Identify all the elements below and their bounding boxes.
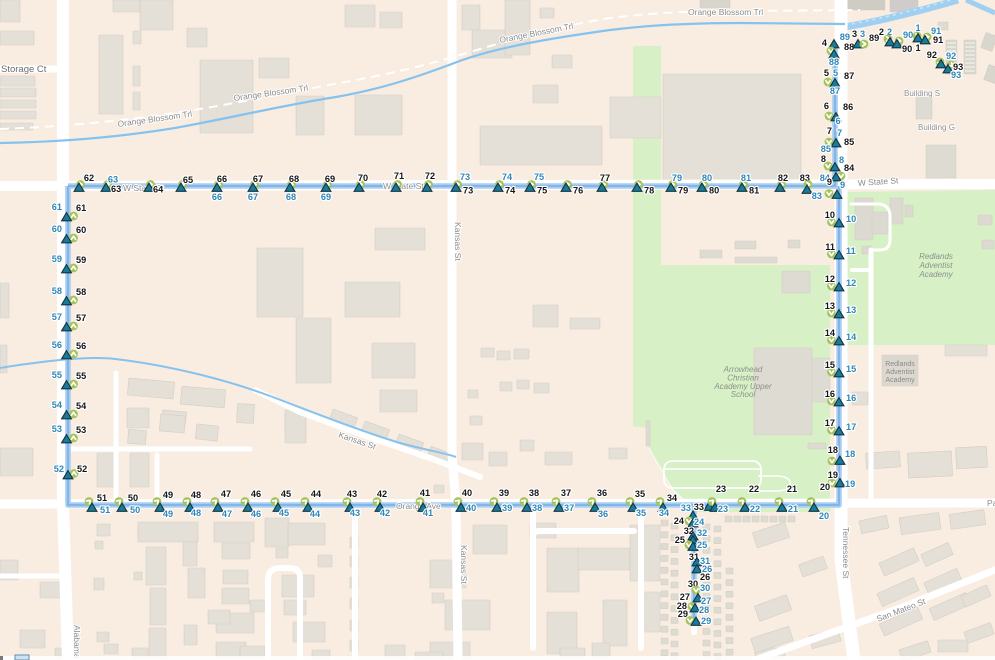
- svg-text:39: 39: [502, 503, 512, 513]
- svg-text:Kansas St: Kansas St: [459, 545, 469, 584]
- svg-text:30: 30: [700, 583, 710, 593]
- svg-text:3: 3: [860, 29, 865, 39]
- svg-text:60: 60: [52, 224, 62, 234]
- svg-text:69: 69: [321, 192, 331, 202]
- svg-text:26: 26: [700, 572, 710, 582]
- svg-text:63: 63: [111, 184, 121, 194]
- svg-text:65: 65: [183, 175, 193, 185]
- svg-text:85: 85: [844, 137, 854, 147]
- svg-text:42: 42: [377, 489, 387, 499]
- svg-text:89: 89: [869, 33, 879, 43]
- svg-text:44: 44: [311, 489, 322, 499]
- svg-text:Building S: Building S: [904, 89, 940, 98]
- svg-text:46: 46: [251, 509, 261, 519]
- svg-text:5: 5: [824, 68, 829, 78]
- svg-text:87: 87: [830, 86, 840, 96]
- svg-text:43: 43: [350, 508, 360, 518]
- svg-text:Academy: Academy: [918, 270, 953, 279]
- svg-text:16: 16: [846, 393, 856, 403]
- svg-text:64: 64: [153, 185, 164, 195]
- svg-text:50: 50: [130, 505, 140, 515]
- svg-text:7: 7: [837, 128, 842, 138]
- svg-text:Adventist: Adventist: [886, 369, 915, 376]
- svg-text:45: 45: [279, 508, 289, 518]
- svg-text:38: 38: [532, 503, 542, 513]
- svg-text:63: 63: [108, 175, 118, 185]
- svg-text:60: 60: [76, 225, 86, 235]
- svg-text:23: 23: [716, 484, 726, 494]
- svg-text:1: 1: [915, 23, 920, 33]
- svg-text:9: 9: [840, 180, 845, 190]
- svg-text:21: 21: [788, 504, 798, 514]
- svg-text:3: 3: [852, 29, 857, 39]
- svg-text:79: 79: [678, 186, 688, 196]
- svg-text:58: 58: [76, 287, 86, 297]
- svg-text:90: 90: [903, 30, 913, 40]
- svg-text:51: 51: [97, 493, 107, 503]
- svg-text:43: 43: [347, 489, 357, 499]
- svg-text:35: 35: [636, 508, 646, 518]
- svg-text:92: 92: [946, 51, 956, 61]
- svg-text:Redlands: Redlands: [885, 361, 915, 368]
- svg-text:93: 93: [951, 70, 961, 80]
- svg-text:Adventist: Adventist: [919, 261, 954, 270]
- svg-text:77: 77: [600, 173, 610, 183]
- svg-text:59: 59: [52, 254, 62, 264]
- svg-text:5: 5: [833, 68, 838, 78]
- svg-text:4: 4: [822, 38, 828, 48]
- svg-text:76: 76: [573, 186, 583, 196]
- svg-text:73: 73: [463, 186, 473, 196]
- svg-text:42: 42: [380, 508, 390, 518]
- svg-text:70: 70: [358, 173, 368, 183]
- svg-text:16: 16: [825, 389, 835, 399]
- svg-text:58: 58: [52, 286, 62, 296]
- svg-text:61: 61: [76, 203, 86, 213]
- svg-text:79: 79: [672, 173, 682, 183]
- svg-text:51: 51: [100, 505, 110, 515]
- svg-text:19: 19: [845, 479, 855, 489]
- svg-text:36: 36: [598, 509, 608, 519]
- svg-text:57: 57: [76, 313, 86, 323]
- svg-text:25: 25: [697, 540, 707, 550]
- svg-text:24: 24: [694, 517, 705, 527]
- svg-text:12: 12: [846, 278, 856, 288]
- svg-text:34: 34: [667, 493, 678, 503]
- svg-text:32: 32: [697, 528, 707, 538]
- svg-text:55: 55: [76, 371, 86, 381]
- svg-text:1: 1: [915, 43, 920, 53]
- svg-text:47: 47: [222, 509, 232, 519]
- svg-text:Tennessee St: Tennessee St: [841, 527, 851, 579]
- svg-text:29: 29: [678, 609, 688, 619]
- svg-text:Academy: Academy: [885, 377, 915, 384]
- svg-text:38: 38: [529, 488, 539, 498]
- svg-text:75: 75: [537, 186, 547, 196]
- svg-text:90: 90: [902, 44, 912, 54]
- svg-text:71: 71: [394, 171, 404, 181]
- svg-text:2: 2: [879, 27, 884, 37]
- svg-text:17: 17: [846, 422, 856, 432]
- svg-text:33: 33: [681, 503, 691, 513]
- svg-text:54: 54: [52, 400, 63, 410]
- svg-text:80: 80: [702, 173, 712, 183]
- svg-text:Orange Blossom Trl: Orange Blossom Trl: [688, 7, 763, 17]
- svg-text:88: 88: [844, 42, 854, 52]
- svg-text:20: 20: [820, 482, 830, 492]
- svg-text:48: 48: [191, 508, 201, 518]
- svg-text:Storage Ct: Storage Ct: [1, 64, 47, 75]
- svg-text:7: 7: [827, 126, 832, 136]
- svg-text:66: 66: [217, 174, 227, 184]
- svg-text:18: 18: [845, 449, 855, 459]
- svg-text:54: 54: [76, 401, 87, 411]
- svg-text:12: 12: [825, 274, 835, 284]
- svg-text:44: 44: [310, 509, 321, 519]
- svg-text:14: 14: [825, 328, 836, 338]
- svg-text:40: 40: [462, 488, 472, 498]
- svg-text:W State St: W State St: [383, 181, 424, 191]
- svg-text:11: 11: [825, 242, 835, 252]
- svg-text:36: 36: [597, 488, 607, 498]
- svg-text:88: 88: [829, 57, 839, 67]
- svg-text:41: 41: [420, 488, 430, 498]
- svg-text:15: 15: [846, 364, 856, 374]
- svg-text:92: 92: [927, 50, 937, 60]
- svg-text:22: 22: [749, 484, 759, 494]
- svg-text:20: 20: [819, 511, 829, 521]
- svg-text:57: 57: [52, 312, 62, 322]
- svg-text:82: 82: [778, 173, 788, 183]
- svg-text:22: 22: [750, 504, 760, 514]
- svg-text:83: 83: [812, 191, 822, 201]
- svg-text:84: 84: [844, 163, 855, 173]
- svg-text:8: 8: [821, 154, 826, 164]
- svg-text:11: 11: [846, 246, 856, 256]
- svg-text:37: 37: [564, 503, 574, 513]
- svg-text:18: 18: [828, 445, 838, 455]
- svg-text:Alabama St: Alabama St: [72, 625, 82, 660]
- svg-text:59: 59: [76, 255, 86, 265]
- svg-text:Redlands: Redlands: [919, 252, 953, 261]
- svg-text:13: 13: [825, 301, 835, 311]
- svg-text:10: 10: [846, 214, 856, 224]
- svg-text:75: 75: [534, 172, 544, 182]
- svg-text:68: 68: [286, 192, 296, 202]
- svg-text:37: 37: [561, 488, 571, 498]
- svg-text:47: 47: [221, 489, 231, 499]
- svg-text:56: 56: [76, 341, 86, 351]
- svg-text:45: 45: [281, 489, 291, 499]
- svg-text:74: 74: [502, 172, 513, 182]
- svg-text:52: 52: [77, 464, 87, 474]
- svg-text:66: 66: [212, 192, 222, 202]
- svg-text:62: 62: [84, 173, 94, 183]
- svg-text:74: 74: [505, 186, 516, 196]
- svg-text:56: 56: [52, 340, 62, 350]
- svg-text:72: 72: [425, 171, 435, 181]
- svg-text:23: 23: [718, 504, 728, 514]
- svg-text:24: 24: [674, 516, 685, 526]
- svg-text:9: 9: [827, 177, 832, 187]
- svg-text:29: 29: [701, 616, 711, 626]
- svg-text:89: 89: [840, 32, 850, 42]
- svg-text:6: 6: [835, 116, 840, 126]
- svg-text:69: 69: [325, 174, 335, 184]
- svg-text:33: 33: [694, 502, 704, 512]
- svg-text:87: 87: [844, 71, 854, 81]
- svg-text:6: 6: [824, 101, 829, 111]
- svg-text:28: 28: [699, 605, 709, 615]
- svg-text:67: 67: [253, 174, 263, 184]
- svg-text:35: 35: [635, 489, 645, 499]
- svg-text:Pa: Pa: [987, 498, 995, 508]
- svg-text:15: 15: [825, 360, 835, 370]
- svg-text:41: 41: [423, 508, 433, 518]
- svg-text:55: 55: [52, 370, 62, 380]
- svg-text:80: 80: [709, 186, 719, 196]
- svg-text:13: 13: [846, 305, 856, 315]
- svg-text:68: 68: [289, 174, 299, 184]
- svg-text:Kansas St: Kansas St: [453, 222, 463, 261]
- svg-text:39: 39: [499, 488, 509, 498]
- svg-text:53: 53: [52, 424, 62, 434]
- svg-text:19: 19: [828, 470, 838, 480]
- svg-text:73: 73: [460, 172, 470, 182]
- svg-text:61: 61: [52, 202, 62, 212]
- svg-text:Building G: Building G: [918, 123, 955, 132]
- svg-text:46: 46: [251, 489, 261, 499]
- svg-text:25: 25: [675, 535, 685, 545]
- svg-text:49: 49: [163, 509, 173, 519]
- svg-text:34: 34: [659, 508, 670, 518]
- svg-text:78: 78: [644, 186, 654, 196]
- svg-text:85: 85: [821, 144, 831, 154]
- svg-text:10: 10: [825, 210, 835, 220]
- svg-text:21: 21: [787, 484, 797, 494]
- svg-text:81: 81: [741, 173, 751, 183]
- svg-text:School: School: [731, 390, 756, 399]
- svg-text:17: 17: [825, 418, 835, 428]
- svg-text:50: 50: [128, 493, 138, 503]
- svg-text:52: 52: [54, 464, 64, 474]
- svg-text:86: 86: [843, 102, 853, 112]
- svg-text:67: 67: [248, 192, 258, 202]
- svg-text:91: 91: [933, 35, 943, 45]
- svg-text:48: 48: [191, 490, 201, 500]
- svg-text:53: 53: [76, 425, 86, 435]
- svg-text:81: 81: [749, 186, 759, 196]
- svg-text:49: 49: [163, 490, 173, 500]
- svg-text:14: 14: [846, 332, 857, 342]
- svg-text:40: 40: [466, 503, 476, 513]
